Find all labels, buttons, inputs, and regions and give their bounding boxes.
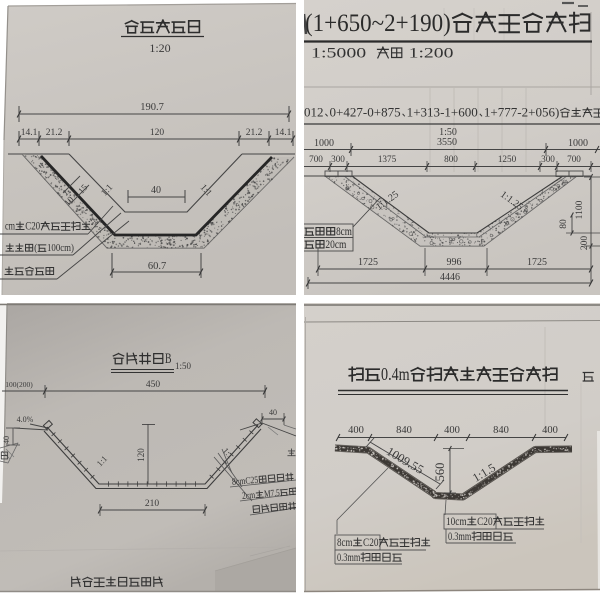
svg-text:0+427-0+875: 0+427-0+875: [330, 106, 401, 120]
svg-text:1:200: 1:200: [404, 46, 454, 62]
svg-text:14.1: 14.1: [21, 128, 38, 138]
svg-text:1250: 1250: [498, 154, 517, 164]
svg-text:1:5000: 1:5000: [311, 46, 376, 62]
svg-text:80: 80: [559, 219, 569, 229]
svg-text:300: 300: [541, 154, 555, 164]
svg-text:1+313-1+600: 1+313-1+600: [407, 106, 478, 120]
svg-text:450: 450: [146, 380, 161, 390]
svg-text:700: 700: [567, 154, 581, 164]
svg-text:190.7: 190.7: [140, 102, 164, 113]
svg-text:700: 700: [309, 154, 323, 164]
svg-text:100(200): 100(200): [5, 380, 33, 389]
svg-text:C20: C20: [477, 516, 493, 528]
svg-text:120: 120: [136, 448, 146, 462]
svg-text:560: 560: [433, 463, 447, 482]
svg-text:840: 840: [396, 425, 412, 436]
svg-text:1725: 1725: [527, 257, 547, 268]
svg-text:14.1: 14.1: [275, 128, 292, 138]
svg-text:C20: C20: [25, 221, 40, 233]
svg-text:1000: 1000: [314, 138, 334, 149]
svg-text:C20: C20: [363, 537, 379, 549]
svg-text:M7.5: M7.5: [264, 488, 281, 500]
svg-text:1100: 1100: [575, 200, 585, 219]
svg-text:8cm: 8cm: [337, 537, 353, 549]
svg-text:200: 200: [580, 236, 590, 251]
svg-text:8cm: 8cm: [336, 224, 352, 238]
svg-text:1375: 1375: [378, 154, 397, 164]
svg-text:21.2: 21.2: [246, 128, 263, 138]
svg-text:cm: cm: [5, 221, 15, 233]
svg-text:3550: 3550: [437, 137, 457, 148]
svg-text:40: 40: [269, 408, 277, 417]
svg-text:012: 012: [304, 106, 324, 120]
svg-text:1725: 1725: [358, 257, 378, 268]
svg-text:996: 996: [447, 257, 462, 268]
svg-text:40: 40: [2, 436, 11, 444]
svg-text:210: 210: [145, 499, 160, 509]
svg-text:(: (: [34, 243, 38, 254]
svg-text:21.2: 21.2: [46, 128, 63, 138]
svg-text:B: B: [165, 351, 172, 367]
svg-text:120: 120: [150, 128, 165, 138]
svg-text:20cm: 20cm: [325, 237, 346, 251]
svg-text:0.3mm: 0.3mm: [337, 552, 360, 564]
svg-text:1+777-2+056): 1+777-2+056): [484, 106, 560, 120]
svg-text:300: 300: [331, 154, 345, 164]
svg-text:400: 400: [444, 425, 460, 436]
svg-text:40: 40: [151, 185, 161, 196]
svg-text:1000: 1000: [568, 138, 588, 149]
svg-text:0.4m: 0.4m: [381, 364, 410, 384]
svg-text:1:20: 1:20: [149, 41, 170, 55]
svg-text:400: 400: [348, 425, 364, 436]
svg-text:0.3mm: 0.3mm: [448, 531, 471, 543]
svg-text:8cmC25: 8cmC25: [232, 475, 259, 488]
svg-text:10cm: 10cm: [446, 516, 467, 528]
svg-text:2cm: 2cm: [242, 490, 256, 502]
svg-text:4446: 4446: [440, 272, 460, 283]
svg-text:4.0%: 4.0%: [17, 415, 34, 424]
svg-text:1:50: 1:50: [175, 361, 192, 371]
svg-text:60.7: 60.7: [148, 261, 166, 272]
svg-text:100cm): 100cm): [47, 243, 74, 254]
svg-text:(1+650~2+190): (1+650~2+190): [305, 10, 451, 37]
svg-text:840: 840: [493, 425, 509, 436]
svg-text:400: 400: [542, 425, 558, 436]
svg-text:800: 800: [444, 154, 458, 164]
